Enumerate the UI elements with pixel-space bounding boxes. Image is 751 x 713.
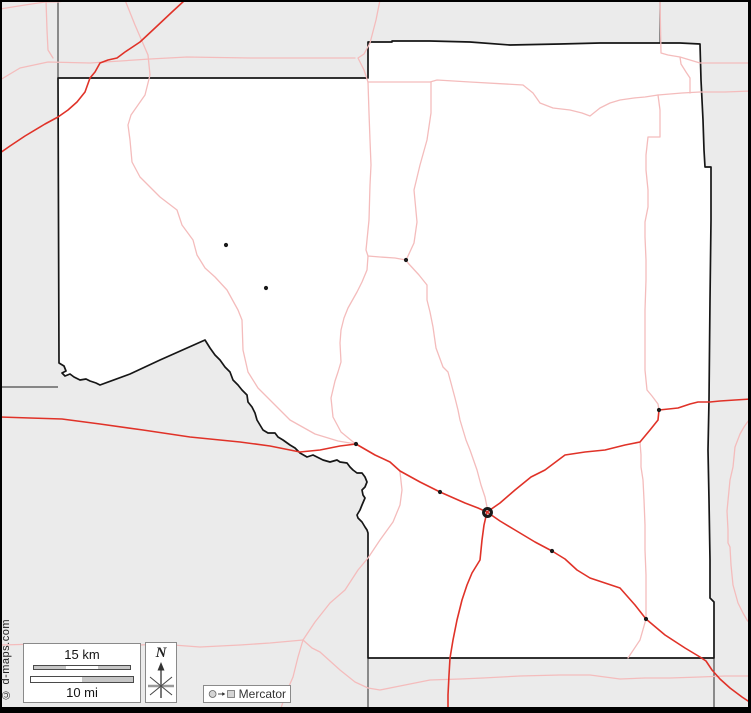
scale-km-bar [33, 665, 131, 670]
copyright-label: © d-maps.com [0, 619, 16, 701]
town-dot [657, 408, 661, 412]
scale-km-segment [98, 666, 130, 669]
town-dot [644, 617, 648, 621]
scale-km-segment [34, 666, 66, 669]
map-frame-left [0, 0, 2, 713]
scale-bar-panel: 15 km 10 mi [23, 643, 141, 703]
scale-km-label: 15 km [24, 647, 140, 662]
map-canvas [0, 0, 751, 713]
compass-panel: N [145, 642, 177, 703]
map-frame-bottom [0, 707, 751, 713]
projection-transform-icon [208, 687, 236, 701]
town-dot [354, 442, 358, 446]
compass-north-label: N [146, 645, 176, 661]
town-dot [550, 549, 554, 553]
town-dot [264, 286, 268, 290]
town-dot [438, 490, 442, 494]
scale-mi-segment [31, 677, 82, 682]
projection-badge: Mercator [203, 685, 291, 703]
scale-mi-label: 10 mi [24, 685, 140, 700]
scale-mi-segment [82, 677, 133, 682]
town-dot [224, 243, 228, 247]
scale-km-segment [66, 666, 98, 669]
map-stage: 15 km 10 mi N Mercator © d-maps.com [0, 0, 751, 713]
compass-arrow-icon [146, 661, 176, 701]
town-dot [404, 258, 408, 262]
projection-label: Mercator [239, 686, 286, 702]
map-frame-top [0, 0, 751, 2]
scale-mi-bar [30, 676, 134, 683]
